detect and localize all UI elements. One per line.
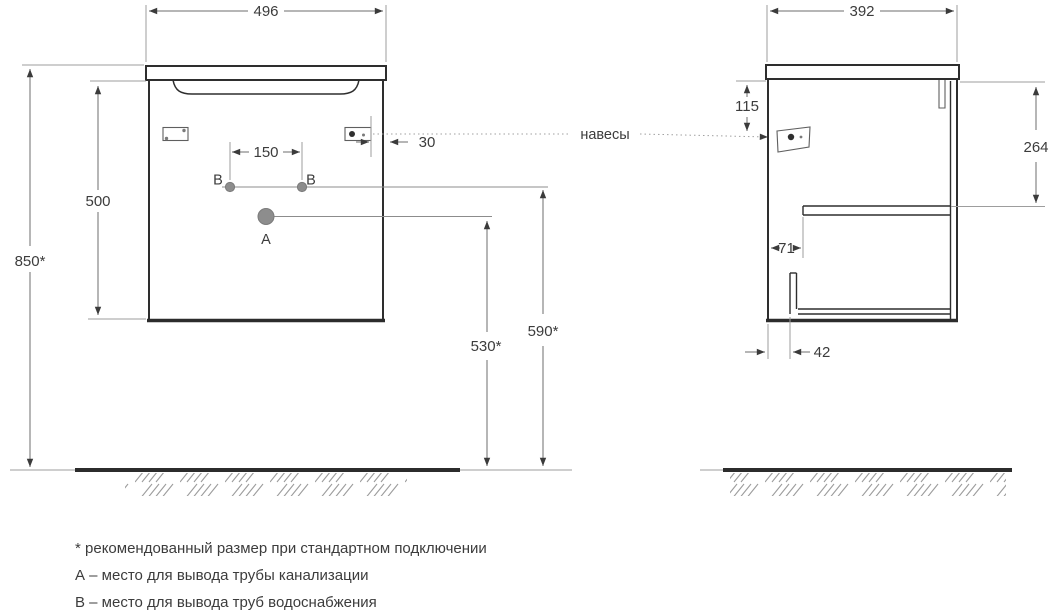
front-cabinet-body xyxy=(149,78,383,320)
drawing-canvas: 496 850* 500 30 xyxy=(0,0,1050,610)
dim-label-depth: 392 xyxy=(849,3,874,20)
front-hanger-left xyxy=(163,128,188,141)
point-a-label: А xyxy=(261,232,271,248)
front-countertop xyxy=(146,66,386,80)
front-floor xyxy=(10,470,572,496)
front-cabinet xyxy=(146,66,386,321)
hanger-mount-dot xyxy=(788,134,794,140)
legend-note-a: А – место для вывода трубы канализации xyxy=(75,567,368,584)
side-countertop xyxy=(766,65,959,79)
dim-label-hole-spacing: 150 xyxy=(253,144,278,161)
side-cabinet xyxy=(766,65,959,321)
hanger-screw-dot xyxy=(800,136,803,139)
hanger-screw-dot xyxy=(182,129,185,132)
side-floor xyxy=(700,470,1012,496)
legend-note-asterisk: * рекомендованный размер при стандартном… xyxy=(75,540,487,557)
dim-label-hanger-drop: 115 xyxy=(735,98,759,115)
side-hanger xyxy=(777,127,810,152)
hanger-screw-dot xyxy=(165,137,168,140)
side-bottom-panel xyxy=(790,273,950,314)
front-dim-overall-height: 850* xyxy=(15,65,144,467)
side-dim-bottom-inset: 42 xyxy=(745,317,830,361)
point-a xyxy=(258,209,274,225)
dim-label-hanger-offset: 30 xyxy=(419,134,436,151)
hanger-bracket xyxy=(345,128,371,141)
dim-label-drain-height: 530* xyxy=(471,338,502,355)
front-dim-width: 496 xyxy=(146,3,386,62)
dim-label-supply-height: 590* xyxy=(528,323,559,340)
point-b-right-label: В xyxy=(306,173,316,189)
hanger-screw-dot xyxy=(362,134,365,137)
front-view: 496 850* 500 30 xyxy=(10,3,572,496)
front-dim-supply-height: 590* xyxy=(528,190,559,466)
side-dim-depth: 392 xyxy=(767,3,957,62)
floor-hatching xyxy=(730,473,1006,496)
side-dim-shelf-inset: 71 xyxy=(771,217,803,258)
dim-label-cabinet-height: 500 xyxy=(85,193,110,210)
legend: * рекомендованный размер при стандартном… xyxy=(75,540,487,610)
hangers-label: навесы xyxy=(580,127,629,143)
floor-hatching xyxy=(125,473,407,496)
front-hanger-right xyxy=(345,128,371,141)
side-shelf xyxy=(803,206,950,215)
front-dim-drain-height: 530* xyxy=(471,221,502,466)
side-door-rail-notch xyxy=(939,80,945,108)
point-b-left xyxy=(225,182,234,191)
callout-leader-line xyxy=(640,134,768,137)
front-dim-cabinet-height: 500 xyxy=(85,81,146,319)
vanity-dimension-drawing: 496 850* 500 30 xyxy=(0,0,1050,610)
dim-label-shelf-inset: 71 xyxy=(778,240,795,257)
hanger-mount-dot xyxy=(349,131,355,137)
side-view: 392 115 264 71 xyxy=(700,3,1049,496)
dim-label-width: 496 xyxy=(253,3,278,20)
dim-label-bottom-inset: 42 xyxy=(814,344,831,361)
legend-note-b: В – место для вывода труб водоснабжения xyxy=(75,594,377,610)
hanger-bracket xyxy=(777,127,810,152)
side-dim-shelf-drop: 264 xyxy=(951,82,1049,207)
point-b-left-label: В xyxy=(213,173,223,189)
dim-label-shelf-drop: 264 xyxy=(1023,139,1048,156)
side-dim-hanger-drop: 115 xyxy=(735,81,766,131)
dim-label-overall-height: 850* xyxy=(15,253,46,270)
